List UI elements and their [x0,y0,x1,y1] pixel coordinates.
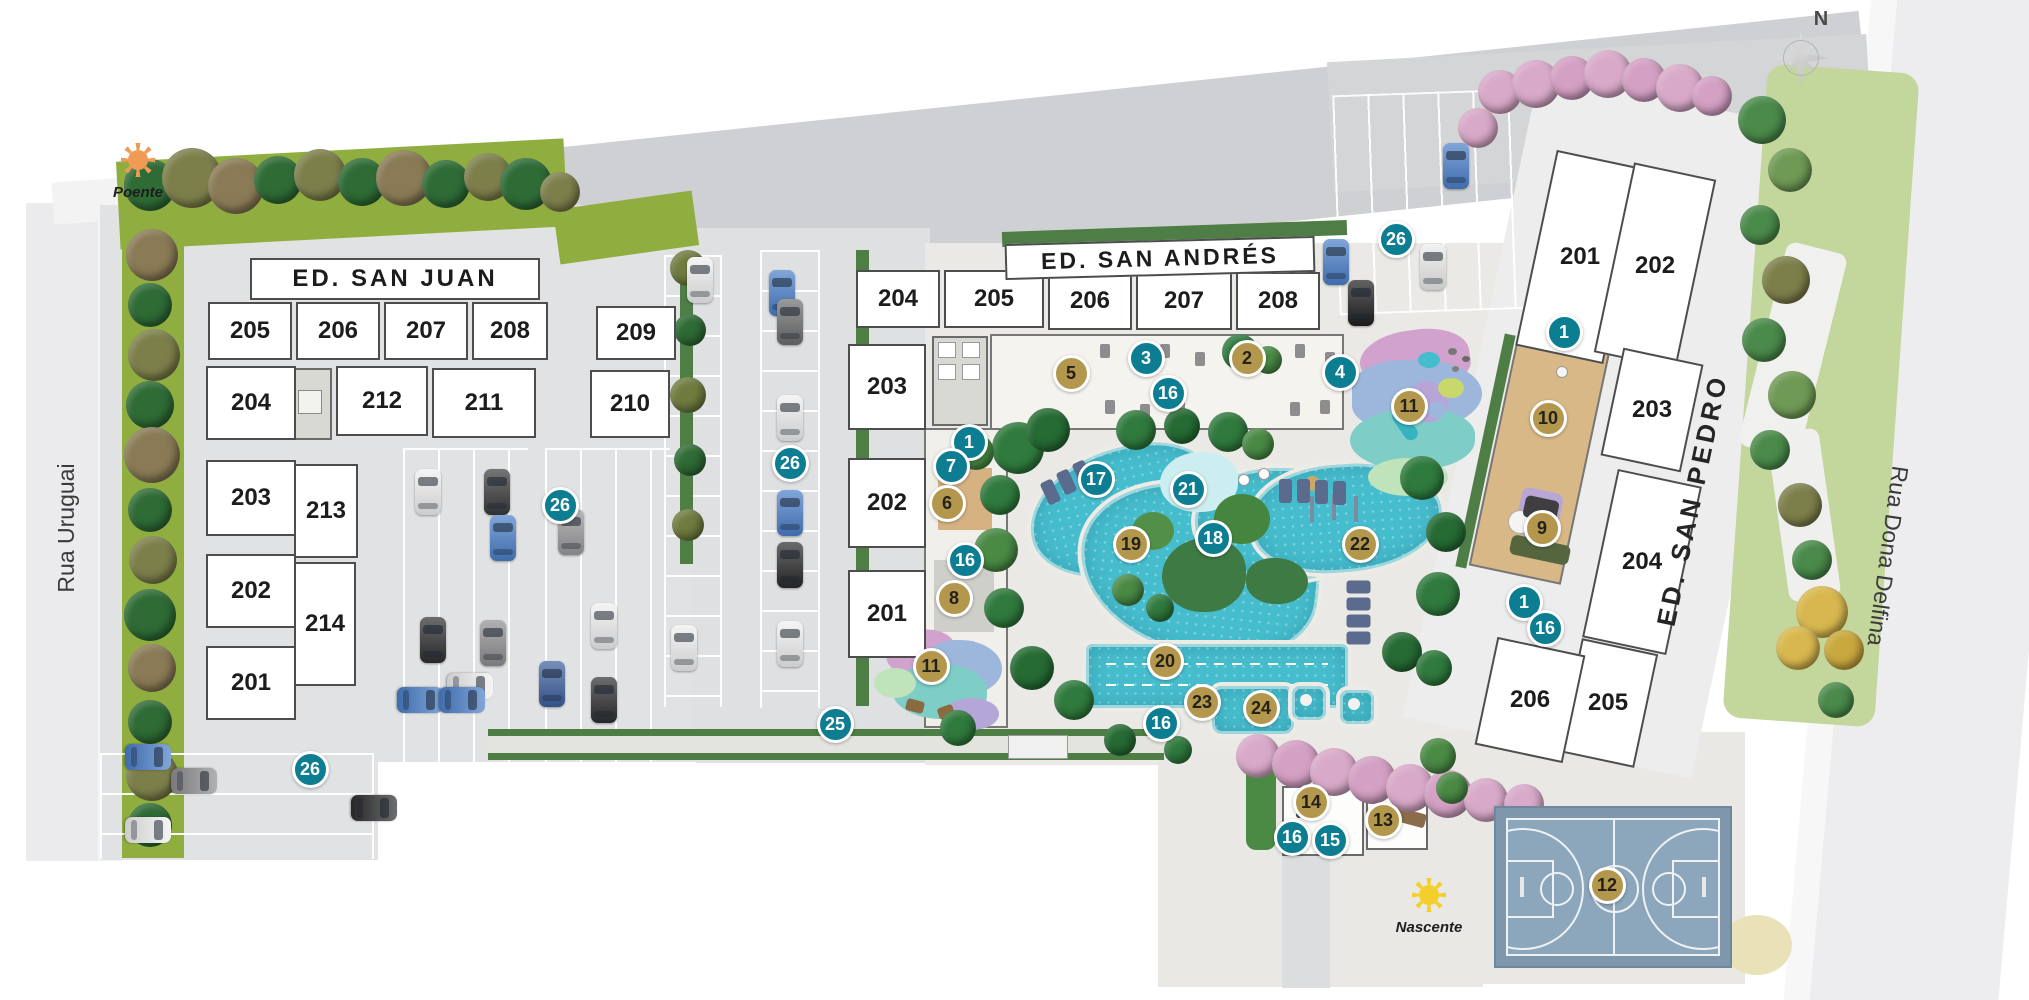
legend-marker-7[interactable]: 7 [933,448,970,485]
lounger [1297,479,1310,503]
parked-car [125,817,171,843]
tree [1762,256,1810,304]
tree [1026,408,1070,452]
water-toy [1438,378,1464,398]
tree [1776,626,1820,670]
legend-marker-2[interactable]: 2 [1229,340,1266,377]
legend-marker-21[interactable]: 21 [1170,471,1207,508]
tree [674,314,706,346]
tree [1416,650,1452,686]
unit-san_juan-211: 211 [432,368,536,438]
parked-car [351,795,397,821]
tree [980,475,1020,515]
legend-marker-16[interactable]: 16 [1527,610,1564,647]
splash-blob [874,668,916,698]
parked-car [591,603,617,649]
legend-marker-11[interactable]: 11 [1391,388,1428,425]
lounger [1347,581,1371,594]
compass-north-label: N [1806,8,1836,30]
cafe-table [1238,474,1250,486]
tree [124,589,176,641]
tree [1416,572,1460,616]
tree [1426,512,1466,552]
tree [124,427,180,483]
parked-car [777,299,803,345]
tree [1116,410,1156,450]
legend-marker-16[interactable]: 16 [1143,705,1180,742]
tree [1420,738,1456,774]
lounger [1333,481,1346,505]
tree [940,710,976,746]
parked-car [687,257,713,303]
backboard-left [1520,877,1524,897]
court-threept-arc-right [1642,828,1720,950]
tree [128,488,172,532]
sunset-label: Poente [96,184,180,201]
tree [126,381,174,429]
pebble [1462,356,1470,362]
tree [126,229,178,281]
legend-marker-1[interactable]: 1 [1546,314,1583,351]
unit-san_juan-205: 205 [208,302,292,360]
parked-car [439,687,485,713]
pebble [1452,366,1459,372]
legend-marker-5[interactable]: 5 [1053,355,1090,392]
tree [1146,594,1174,622]
tree [674,444,706,476]
legend-marker-26[interactable]: 26 [292,751,329,788]
legend-marker-20[interactable]: 20 [1147,643,1184,680]
unit-san_juan-210: 210 [590,370,670,438]
parked-car [484,469,510,515]
parked-car [671,625,697,671]
legend-marker-26[interactable]: 26 [542,487,579,524]
unit-san_juan-206: 206 [296,302,380,360]
elevator-cab [938,364,956,380]
gym-equipment [1195,352,1205,366]
tree [1104,724,1136,756]
legend-marker-26[interactable]: 26 [772,445,809,482]
sand-patch [1722,915,1792,975]
parked-car [1323,239,1349,285]
parked-car [777,621,803,667]
tree [540,172,580,212]
elevator-cab [962,364,980,380]
unit-san_juan-208: 208 [472,302,548,360]
legend-marker-24[interactable]: 24 [1243,690,1280,727]
cafe-table [1258,468,1270,480]
tree [128,644,176,692]
site-plan-map: ED. SAN JUAN ED. SAN ANDRÉS ED. SAN PEDR… [0,0,2029,1000]
parked-car [125,744,171,770]
parked-car [1443,143,1469,189]
pond [1418,352,1440,368]
lounger [1347,598,1371,611]
lounger [1347,632,1371,645]
parked-car [490,515,516,561]
tree [1692,76,1732,116]
legend-marker-16[interactable]: 16 [947,542,984,579]
pool-rail [1310,496,1314,522]
unit-san_juan-213: 213 [294,464,358,558]
parked-car [171,768,217,794]
tree [128,283,172,327]
stair-core [298,390,322,414]
legend-marker-25[interactable]: 25 [817,706,854,743]
lounger [1315,480,1328,504]
tree [670,377,706,413]
tree [1400,456,1444,500]
legend-marker-26[interactable]: 26 [1378,221,1415,258]
spa-seat [1300,694,1312,706]
unit-san_juan-209: 209 [596,306,676,360]
tree [1778,483,1822,527]
tree [1242,428,1274,460]
tree [1740,205,1780,245]
parked-car [777,542,803,588]
unit-san_andres-208: 208 [1236,272,1320,330]
unit-san_andres-204: 204 [856,270,940,328]
pebble [1448,348,1457,355]
parked-car [591,677,617,723]
unit-san_juan-214: 214 [294,562,356,686]
legend-marker-8[interactable]: 8 [936,580,973,617]
sunset-icon [116,138,160,182]
tree [1768,148,1812,192]
tree [1436,772,1468,804]
spa-seat [1348,698,1360,710]
unit-san_juan-201: 201 [206,646,296,720]
legend-marker-10[interactable]: 10 [1530,400,1567,437]
sun-core [1419,885,1439,905]
lane-line [1106,684,1328,686]
tree [1742,318,1786,362]
building-title-san-juan: ED. SAN JUAN [250,258,540,300]
legend-marker-16[interactable]: 16 [1150,375,1187,412]
court-threept-arc-left [1506,828,1584,950]
legend-marker-11[interactable]: 11 [913,648,950,685]
walkway-south [1282,856,1330,988]
tree [128,329,180,381]
compass-rose-icon [1773,30,1829,86]
pool-island [1246,558,1308,604]
gym-equipment [1100,344,1110,358]
unit-san_andres-203: 203 [848,344,926,430]
gym-equipment [1105,400,1115,414]
tree [1010,646,1054,690]
parked-car [777,395,803,441]
lounger [1347,615,1371,628]
unit-san_andres-201: 201 [848,570,926,658]
unit-san_juan-202: 202 [206,554,296,628]
legend-marker-15[interactable]: 15 [1312,822,1349,859]
sun-core [128,150,148,170]
parked-car [1348,280,1374,326]
legend-marker-9[interactable]: 9 [1524,510,1561,547]
parked-car [1420,244,1446,290]
cafe-table [1556,366,1568,378]
lane-line [1106,663,1328,665]
sunrise-icon [1407,873,1451,917]
tree [1792,540,1832,580]
parked-car [420,617,446,663]
parked-car [415,469,441,515]
unit-san_andres-202: 202 [848,458,926,548]
pool-rail [1354,496,1358,522]
backboard-right [1702,877,1706,897]
unit-san_juan-212: 212 [336,366,428,436]
tree [672,509,704,541]
legend-marker-16[interactable]: 16 [1274,819,1311,856]
legend-marker-14[interactable]: 14 [1293,784,1330,821]
tree [422,160,470,208]
legend-marker-22[interactable]: 22 [1342,526,1379,563]
tree [1164,408,1200,444]
unit-san_andres-206: 206 [1048,272,1132,330]
gym-equipment [1320,400,1330,414]
tree [1458,108,1498,148]
parked-car [480,620,506,666]
tree [128,700,172,744]
gym-equipment [1295,344,1305,358]
tree [984,588,1024,628]
legend-marker-4[interactable]: 4 [1322,354,1359,391]
unit-san_andres-207: 207 [1136,272,1232,330]
stairs [1008,735,1068,759]
parked-car [539,661,565,707]
legend-marker-6[interactable]: 6 [929,485,966,522]
parked-car [397,687,443,713]
tree [1818,682,1854,718]
tree [129,536,177,584]
legend-marker-13[interactable]: 13 [1365,802,1402,839]
legend-marker-18[interactable]: 18 [1195,520,1232,557]
legend-marker-19[interactable]: 19 [1113,526,1150,563]
unit-san_juan-203: 203 [206,460,296,536]
tree [1738,96,1786,144]
gym-equipment [1290,402,1300,416]
tree [1750,430,1790,470]
unit-san_juan-207: 207 [384,302,468,360]
compass-ring [1783,40,1819,76]
tree [1054,680,1094,720]
street-label-rua-uruguai: Rua Uruguai [46,418,86,638]
sunrise-label: Nascente [1385,919,1473,936]
lounger [1279,479,1292,503]
elevator-cab [962,342,980,358]
legend-marker-23[interactable]: 23 [1184,684,1221,721]
legend-marker-3[interactable]: 3 [1128,340,1165,377]
legend-marker-12[interactable]: 12 [1589,867,1626,904]
tree [1112,574,1144,606]
tree [1768,371,1816,419]
water-toy [1428,402,1446,418]
legend-marker-17[interactable]: 17 [1078,461,1115,498]
parked-car [777,490,803,536]
unit-san_juan-204: 204 [206,366,296,440]
elevator-cab [938,342,956,358]
